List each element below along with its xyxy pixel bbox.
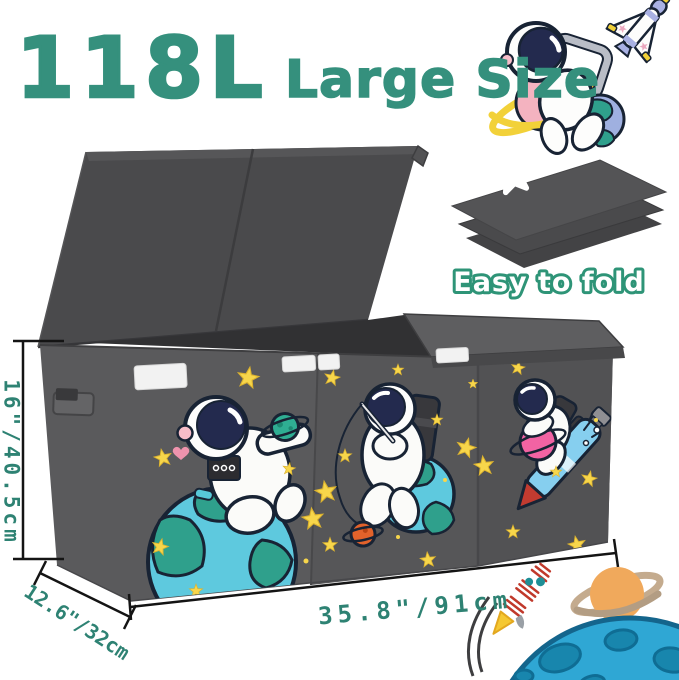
page-title: 118L Large Size bbox=[16, 26, 600, 110]
folded-box-icon bbox=[452, 155, 666, 268]
volume-label: 118L bbox=[16, 26, 269, 110]
star-icon bbox=[493, 155, 533, 194]
moon-icon bbox=[488, 618, 679, 680]
open-lid bbox=[38, 146, 428, 347]
easy-to-fold-label: Easy to fold bbox=[453, 267, 644, 298]
size-label: Large Size bbox=[285, 54, 600, 106]
product-infographic: Easy to fold 118L Large Size 16"/40.5cm … bbox=[0, 0, 679, 680]
height-dimension-label: 16"/40.5cm bbox=[1, 363, 22, 563]
saturn-icon bbox=[570, 567, 664, 621]
